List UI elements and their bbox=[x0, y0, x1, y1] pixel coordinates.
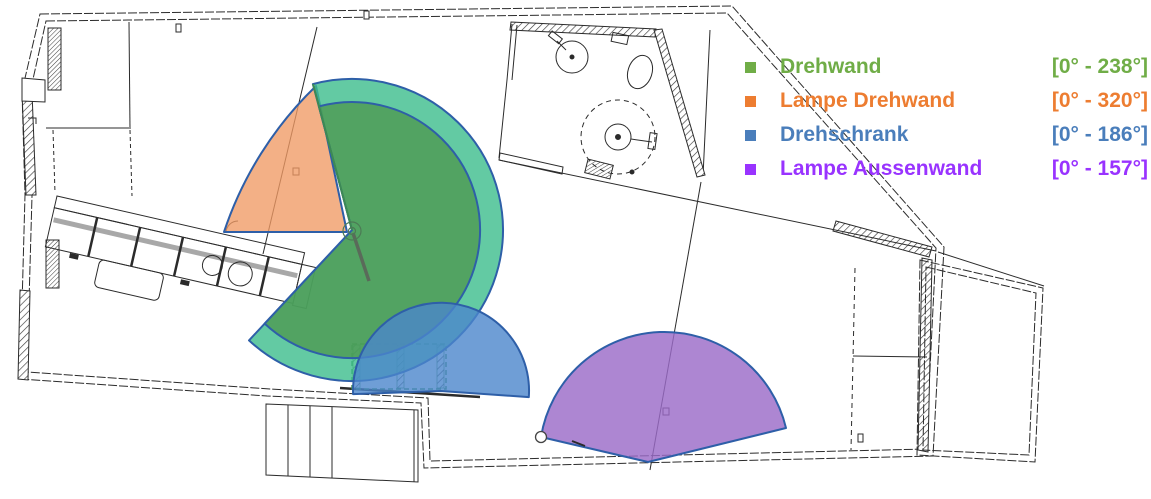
radiator-top-left bbox=[48, 28, 61, 90]
legend-label-lampe-drehwand: Lampe Drehwand bbox=[780, 89, 1052, 113]
legend-item-lampe-drehwand: Lampe Drehwand [0° - 320°] bbox=[742, 84, 1148, 118]
bathroom-wall-top bbox=[510, 22, 656, 37]
terrace bbox=[917, 252, 1044, 462]
stairs bbox=[266, 404, 418, 482]
rotation-range-sectors bbox=[224, 79, 786, 462]
legend-label-drehwand: Drehwand bbox=[780, 55, 1052, 79]
insulated-wall-left-upper bbox=[22, 92, 36, 195]
legend-item-drehwand: Drehwand [0° - 238°] bbox=[742, 50, 1148, 84]
floorplan-canvas: Drehwand [0° - 238°] Lampe Drehwand [0° … bbox=[0, 0, 1151, 499]
bathroom-radiator bbox=[585, 159, 614, 179]
legend-range-lampe-drehwand: [0° - 320°] bbox=[1052, 89, 1148, 113]
legend-swatch-lampe-drehwand bbox=[745, 96, 756, 107]
legend-swatch-drehwand bbox=[745, 62, 756, 73]
insulated-wall-left-lower bbox=[18, 290, 30, 380]
legend-swatch-drehschrank bbox=[745, 130, 756, 141]
shower-valve bbox=[648, 133, 657, 150]
wall-tick bbox=[858, 434, 863, 442]
dishwasher bbox=[94, 259, 165, 301]
legend-range-lampe-aussenwand: [0° - 157°] bbox=[1052, 157, 1148, 181]
wall-tick bbox=[176, 24, 181, 32]
legend-range-drehwand: [0° - 238°] bbox=[1052, 55, 1148, 79]
aussenwand-lamp bbox=[536, 432, 547, 443]
legend-item-lampe-aussenwand: Lampe Aussenwand [0° - 157°] bbox=[742, 152, 1148, 186]
legend: Drehwand [0° - 238°] Lampe Drehwand [0° … bbox=[742, 50, 1148, 186]
wall-stub-left bbox=[22, 78, 45, 102]
toilet bbox=[623, 52, 656, 92]
legend-item-drehschrank: Drehschrank [0° - 186°] bbox=[742, 118, 1148, 152]
legend-swatch-lampe-aussenwand bbox=[745, 164, 756, 175]
insulated-wall-right-slant bbox=[833, 221, 932, 257]
wall-tick bbox=[364, 11, 369, 19]
bathroom bbox=[499, 22, 705, 179]
bathroom-wall-right bbox=[654, 29, 705, 177]
legend-label-drehschrank: Drehschrank bbox=[780, 123, 1052, 147]
legend-label-lampe-aussenwand: Lampe Aussenwand bbox=[780, 157, 1052, 181]
legend-range-drehschrank: [0° - 186°] bbox=[1052, 123, 1148, 147]
